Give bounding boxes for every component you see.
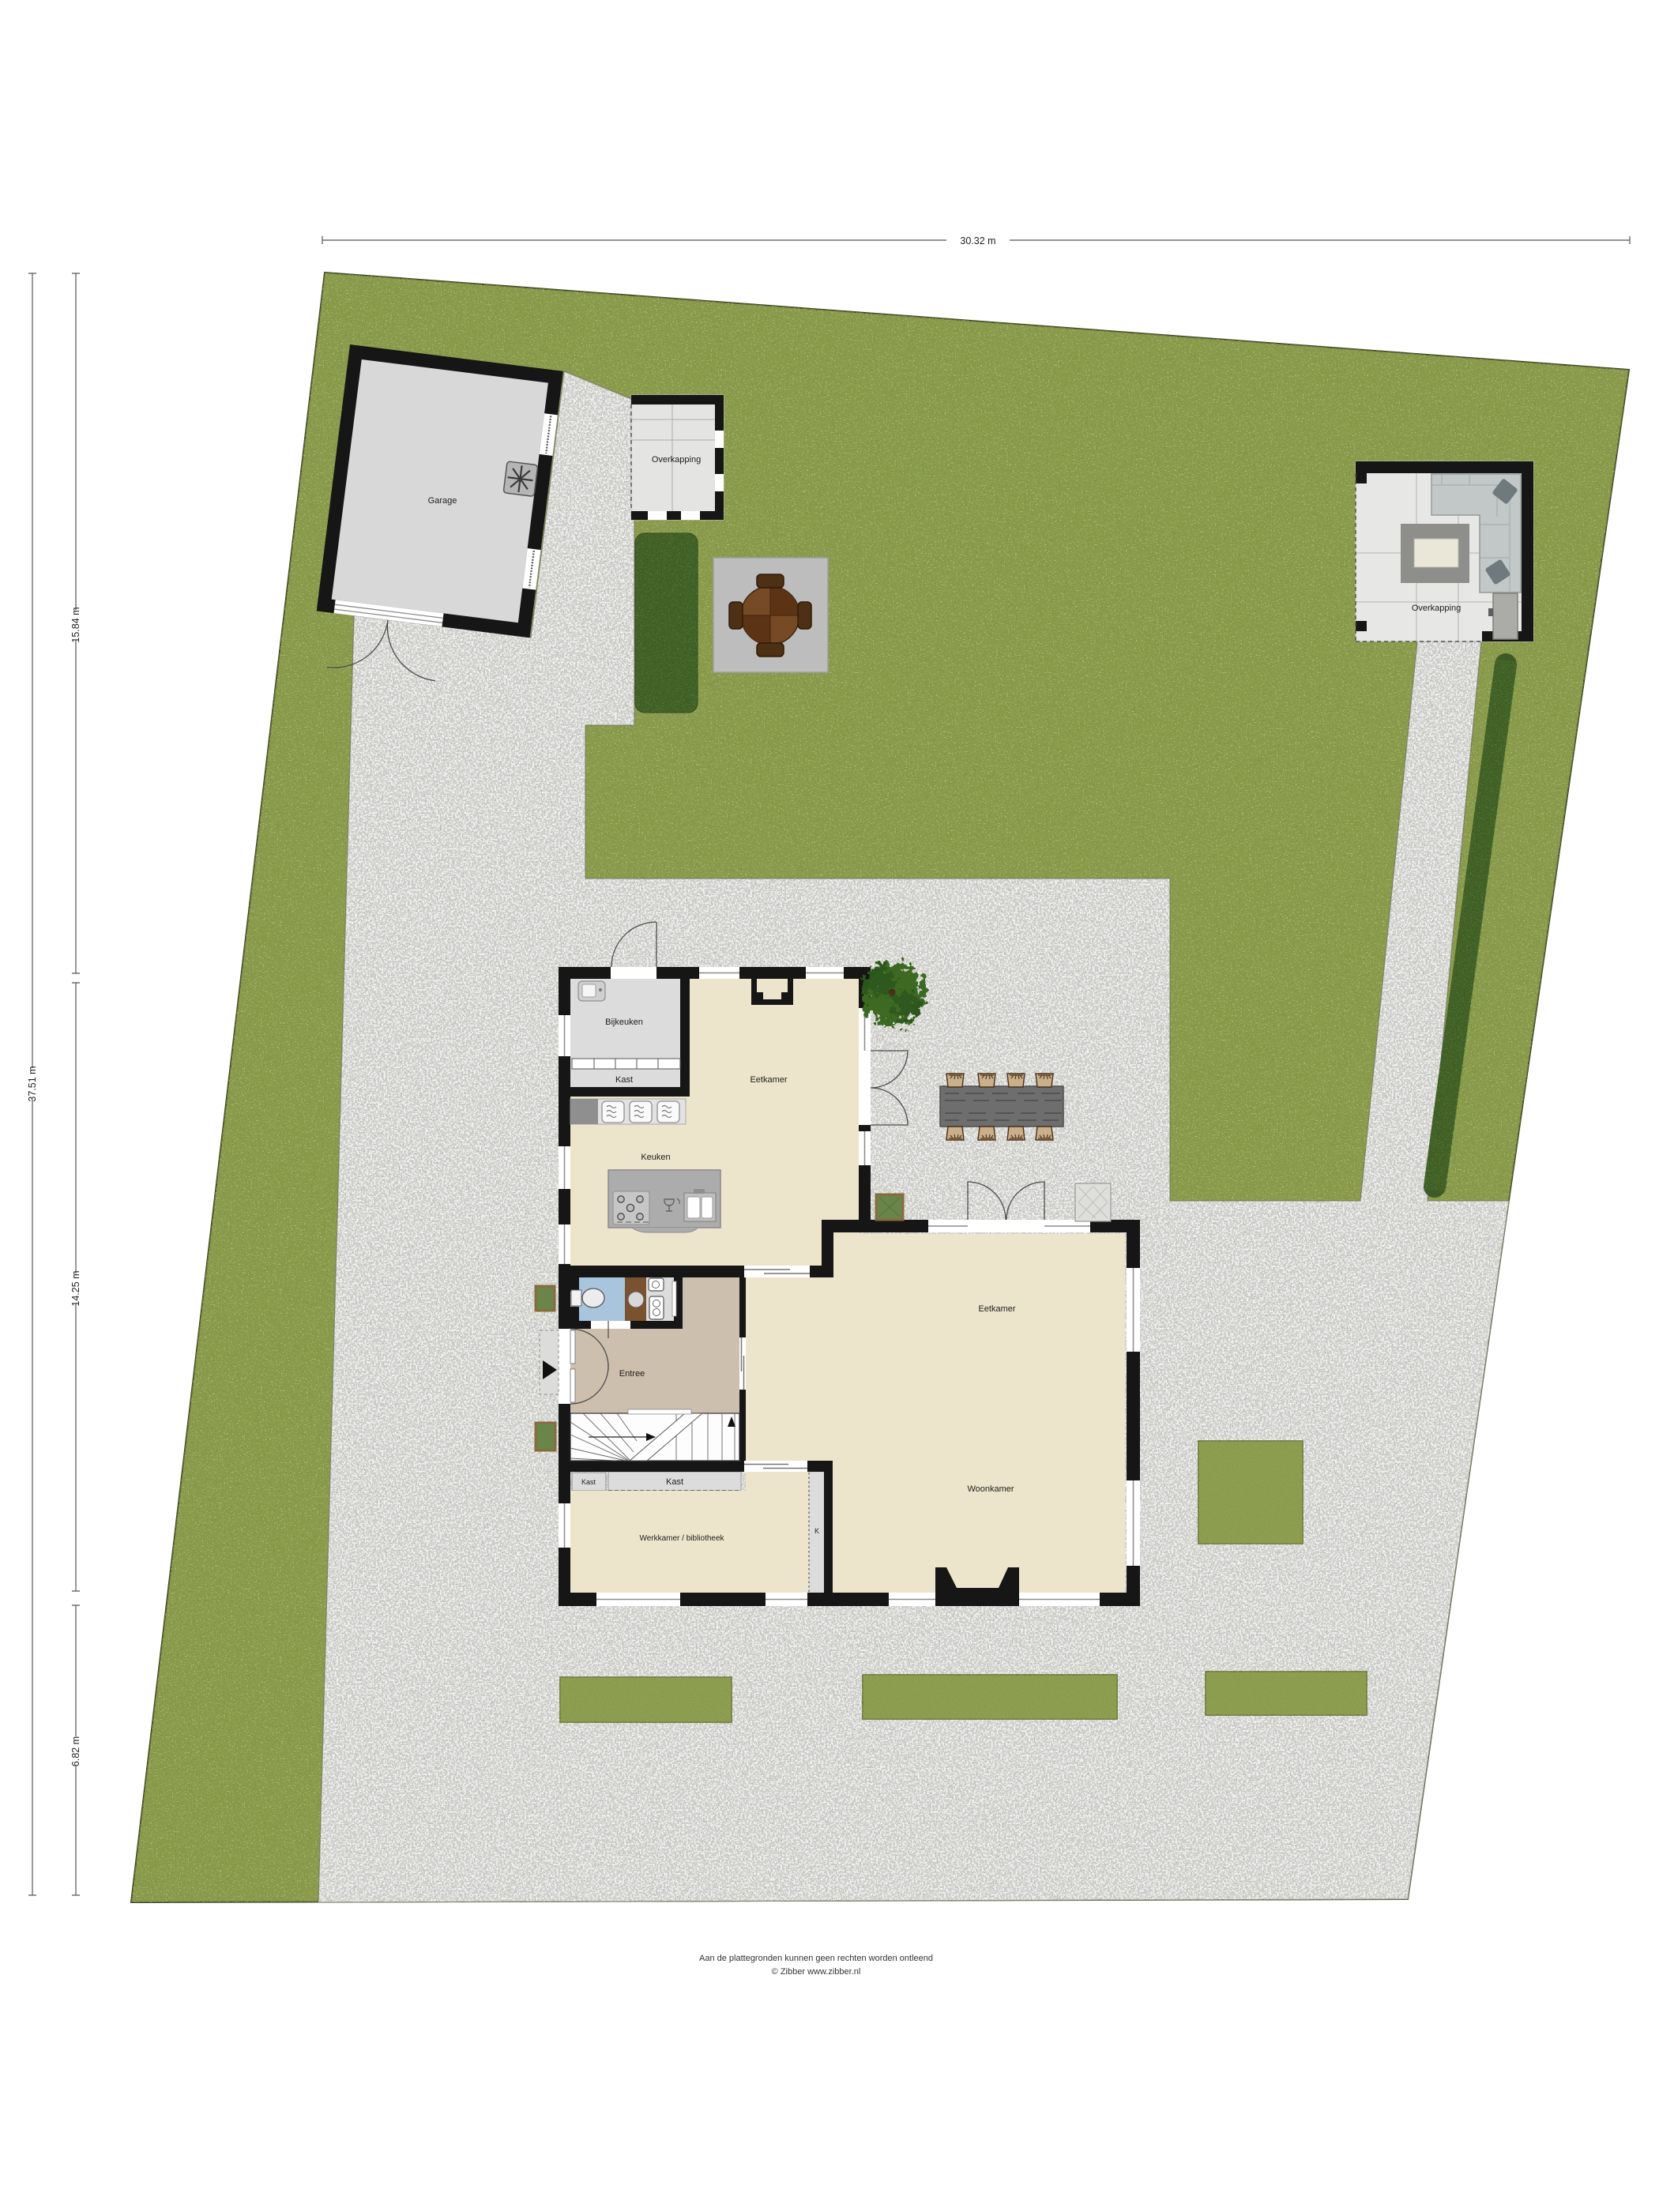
svg-text:Keuken: Keuken	[641, 1153, 670, 1162]
svg-text:Kast: Kast	[581, 1478, 596, 1486]
svg-text:Woonkamer: Woonkamer	[967, 1484, 1014, 1494]
svg-text:14.25 m: 14.25 m	[70, 1270, 81, 1306]
svg-text:Aan de plattegronden kunnen ge: Aan de plattegronden kunnen geen rechten…	[699, 1954, 933, 1963]
svg-text:Eetkamer: Eetkamer	[750, 1075, 787, 1085]
svg-text:37.51 m: 37.51 m	[27, 1066, 38, 1101]
svg-text:15.84 m: 15.84 m	[70, 607, 81, 642]
svg-text:Kast: Kast	[666, 1477, 683, 1487]
svg-text:Overkapping: Overkapping	[652, 455, 701, 465]
svg-text:K: K	[814, 1527, 819, 1535]
svg-text:Werkkamer / bibliotheek: Werkkamer / bibliotheek	[639, 1534, 724, 1543]
svg-text:Eetkamer: Eetkamer	[978, 1304, 1015, 1314]
svg-text:Bijkeuken: Bijkeuken	[605, 1018, 643, 1027]
svg-text:Kast: Kast	[615, 1075, 633, 1085]
svg-text:Entree: Entree	[619, 1369, 645, 1379]
svg-text:6.82 m: 6.82 m	[70, 1736, 81, 1766]
svg-text:30.32 m: 30.32 m	[960, 235, 995, 246]
svg-text:© Zibber www.zibber.nl: © Zibber www.zibber.nl	[772, 1967, 861, 1977]
svg-text:Overkapping: Overkapping	[1412, 604, 1461, 613]
svg-text:Garage: Garage	[428, 496, 457, 506]
